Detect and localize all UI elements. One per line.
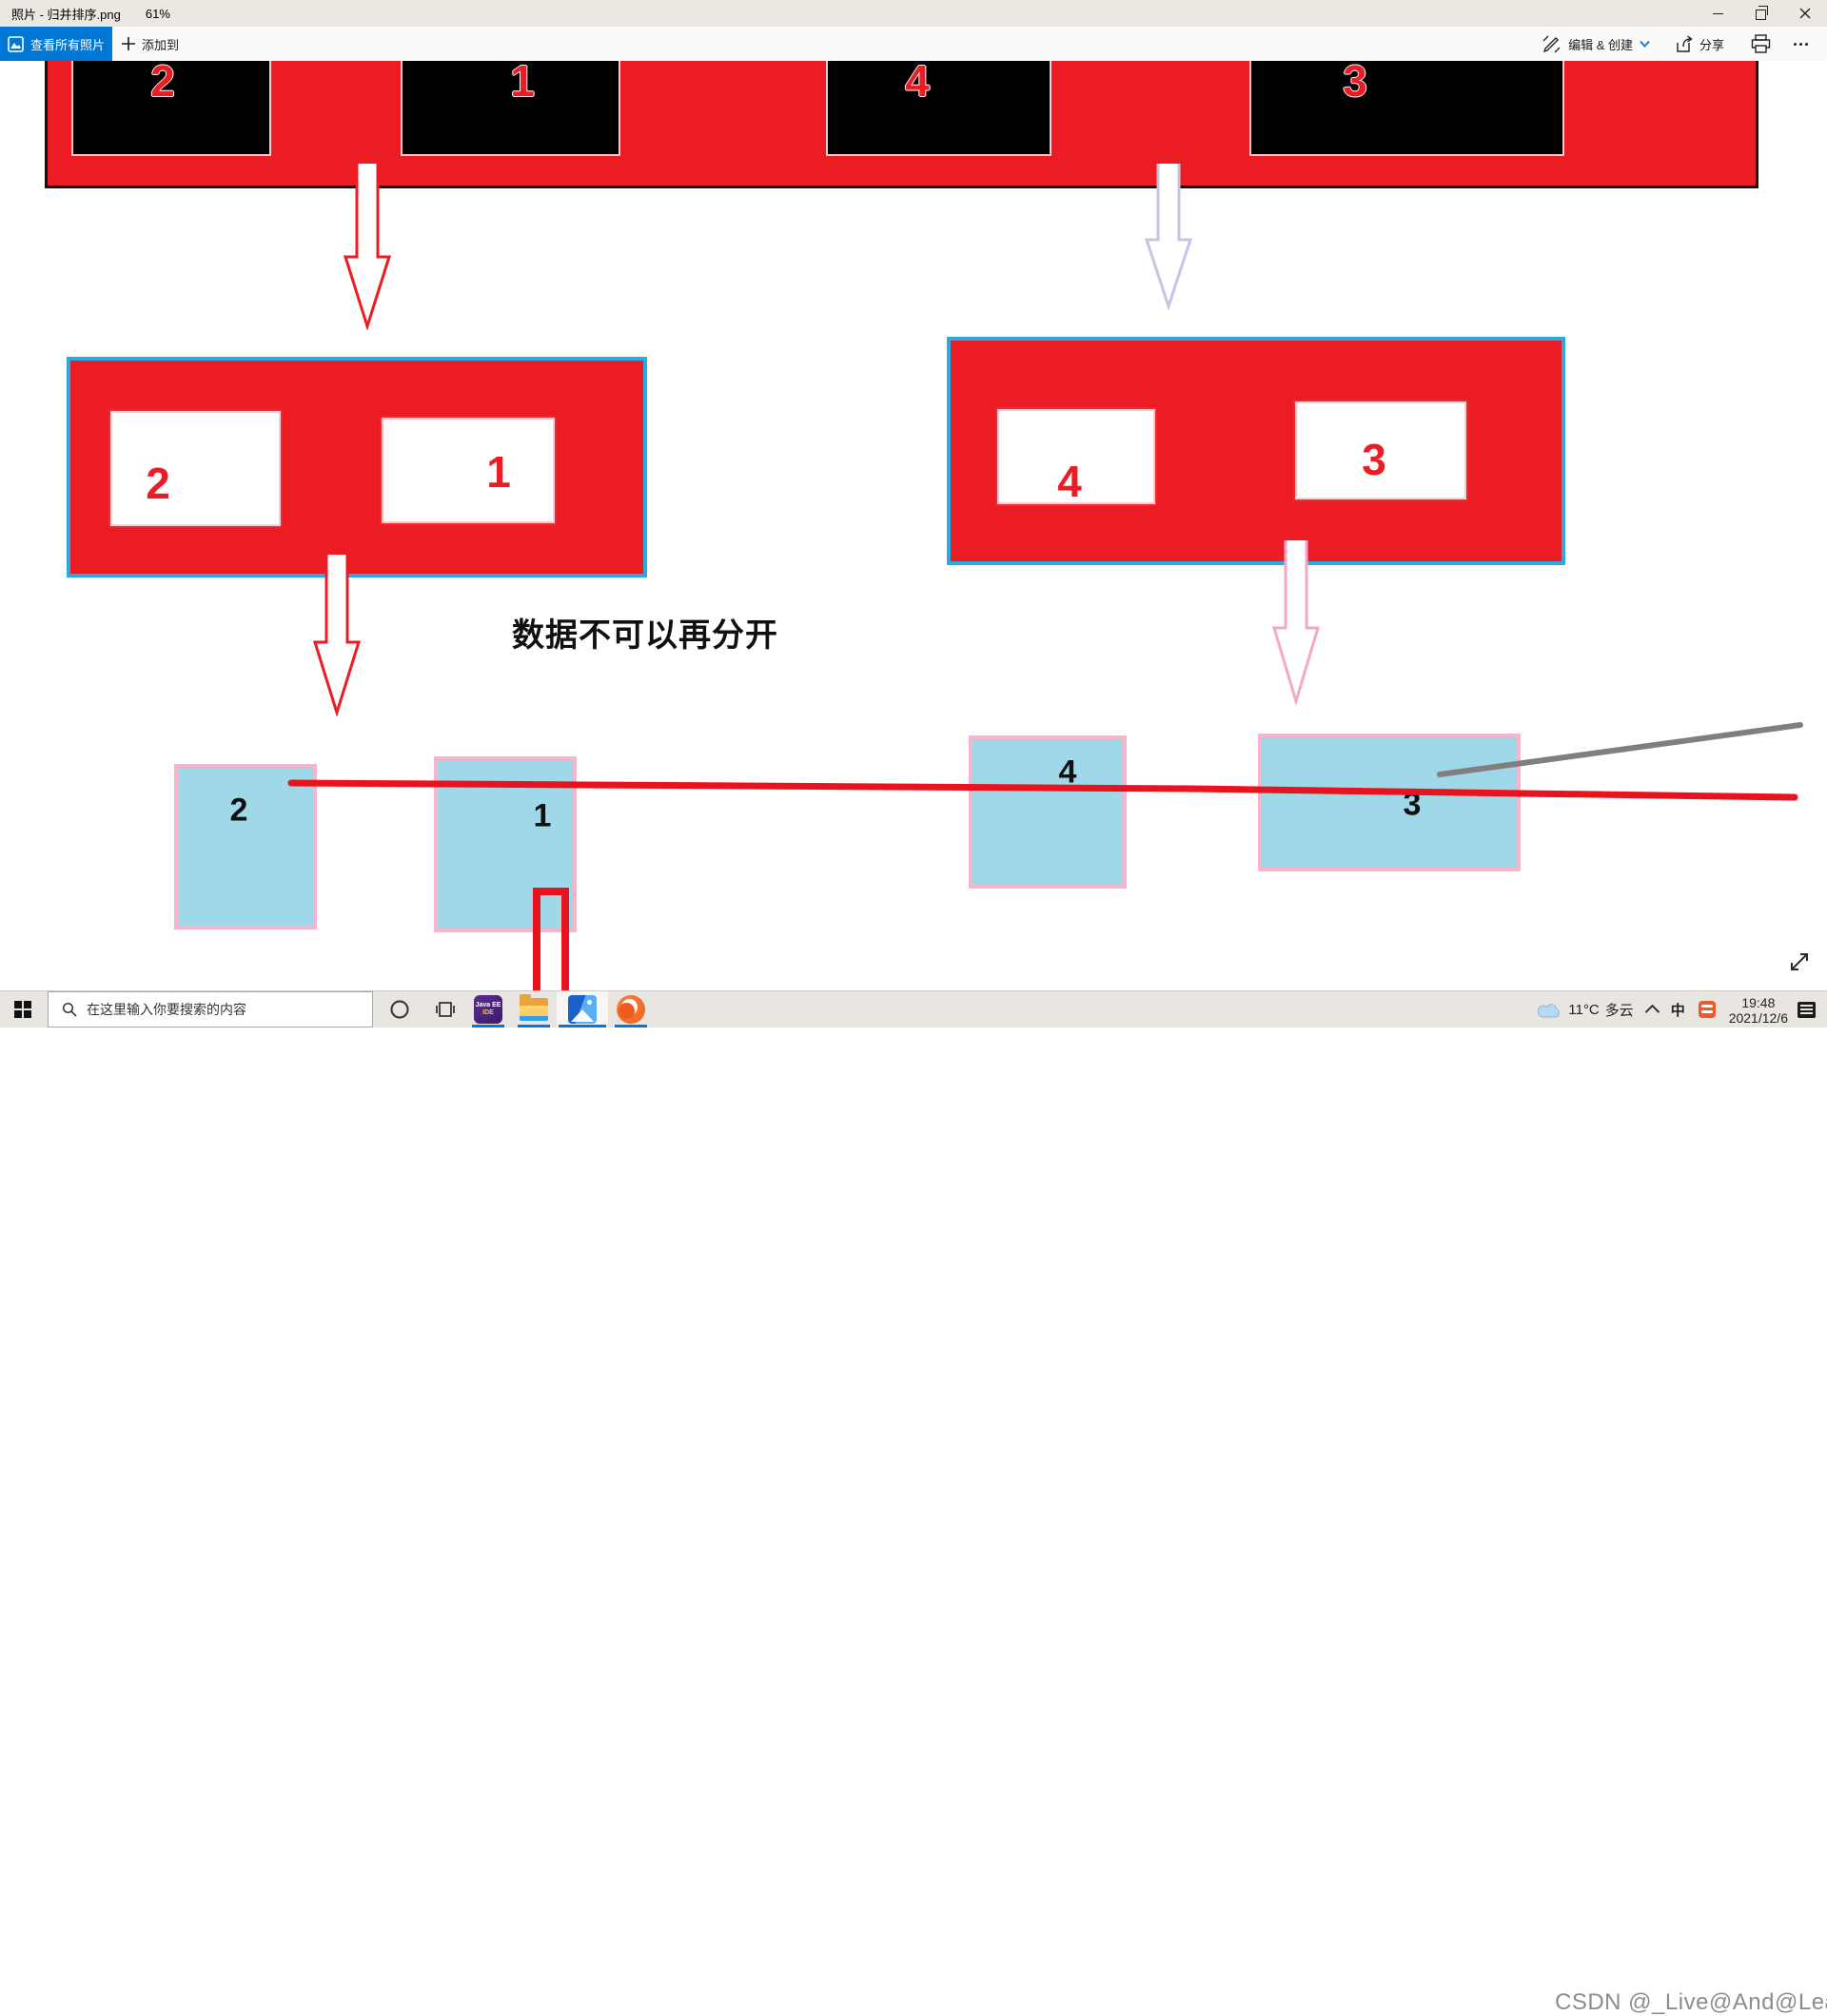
bottom-cell-4 <box>1258 734 1521 871</box>
chevron-down-icon <box>1640 40 1650 48</box>
photo-icon <box>8 36 24 52</box>
cloud-icon <box>1538 1002 1562 1018</box>
close-button[interactable] <box>1783 0 1827 27</box>
start-button[interactable] <box>0 991 46 1028</box>
bottom-cell-3 <box>969 735 1127 889</box>
taskbar-search-input[interactable]: 在这里输入你要搜索的内容 <box>48 991 373 1028</box>
more-button[interactable] <box>1794 43 1808 46</box>
weather-desc: 多云 <box>1605 1000 1634 1020</box>
top-value-3: 4 <box>905 61 930 107</box>
clock-time: 19:48 <box>1729 995 1788 1010</box>
fullscreen-button[interactable] <box>1785 948 1814 976</box>
search-placeholder: 在这里输入你要搜索的内容 <box>87 1000 246 1019</box>
photo-canvas: 2 1 4 3 2 1 4 3 数据不可以再分开 2 1 4 3 <box>0 61 1827 990</box>
file-explorer-icon <box>520 998 548 1021</box>
red-bracket-shape <box>533 888 569 990</box>
bottom-cell-1 <box>174 764 317 930</box>
eclipse-ide-icon: Java EEIDE <box>474 995 502 1024</box>
right-toolbar: 编辑 & 创建 分享 <box>1542 27 1827 61</box>
split-arrow-left <box>341 164 394 330</box>
add-to-label: 添加到 <box>142 35 179 53</box>
taskbar-app-browser[interactable] <box>608 991 654 1028</box>
left-group-cell-1 <box>108 409 283 528</box>
diagram-top-cell-4 <box>1251 61 1562 154</box>
cortana-icon <box>389 999 410 1020</box>
diagram-note: 数据不可以再分开 <box>512 609 778 656</box>
left-group-value-2: 1 <box>486 446 511 498</box>
edit-create-button[interactable]: 编辑 & 创建 <box>1542 35 1650 53</box>
bottom-value-3: 4 <box>1059 754 1077 792</box>
printer-icon <box>1751 34 1771 53</box>
show-hidden-icons-button[interactable] <box>1647 1003 1658 1017</box>
photos-toolbar: 查看所有照片 添加到 编辑 & 创建 <box>0 27 1827 61</box>
view-all-photos-label: 查看所有照片 <box>30 35 105 53</box>
split-arrow-left-2 <box>310 555 363 716</box>
share-icon <box>1675 35 1693 53</box>
taskbar-app-photos-active[interactable] <box>557 991 608 1028</box>
right-group-value-2: 3 <box>1362 434 1386 485</box>
browser-icon <box>617 995 645 1024</box>
share-button[interactable]: 分享 <box>1675 35 1724 53</box>
edit-pencil-icon <box>1542 35 1561 53</box>
input-method-tray-icon[interactable] <box>1699 1001 1716 1018</box>
plus-icon <box>122 37 135 50</box>
share-label: 分享 <box>1699 35 1724 53</box>
print-button[interactable] <box>1751 34 1771 53</box>
zoom-level: 61% <box>146 7 170 21</box>
right-group-value-1: 4 <box>1057 456 1082 507</box>
restore-button[interactable] <box>1739 0 1783 27</box>
left-group-value-1: 2 <box>146 458 170 509</box>
taskbar-app-explorer[interactable] <box>511 991 557 1028</box>
diagram-top-cell-3 <box>828 61 1050 154</box>
csdn-watermark: CSDN @_Live@And@Learn@# <box>1555 1989 1827 2016</box>
left-group-cell-2 <box>380 416 557 525</box>
clock-date: 2021/12/6 <box>1729 1010 1788 1026</box>
search-icon <box>62 1002 77 1017</box>
bottom-value-2: 1 <box>534 798 552 835</box>
view-all-photos-button[interactable]: 查看所有照片 <box>0 27 112 61</box>
photos-app-icon <box>568 995 597 1024</box>
task-view-button[interactable] <box>422 991 468 1028</box>
add-to-button[interactable]: 添加到 <box>122 27 179 61</box>
taskbar-app-eclipse[interactable]: Java EEIDE <box>465 991 511 1028</box>
top-value-2: 1 <box>510 61 535 107</box>
bottom-value-1: 2 <box>230 793 248 830</box>
chevron-up-icon <box>1644 1004 1660 1019</box>
title-bar: 照片 - 归并排序.png 61% <box>0 0 1827 27</box>
ime-mode-indicator[interactable]: 中 <box>1671 1000 1685 1020</box>
restore-icon <box>1756 10 1766 20</box>
system-tray: 11°C 多云 中 19:48 2021/12/6 <box>1538 991 1827 1028</box>
weather-temp: 11°C <box>1568 1002 1599 1018</box>
edit-create-label: 编辑 & 创建 <box>1568 35 1633 53</box>
taskbar-clock[interactable]: 19:48 2021/12/6 <box>1729 995 1788 1026</box>
top-value-1: 2 <box>150 61 175 107</box>
windows-logo-icon <box>14 1001 31 1018</box>
sogou-icon <box>1699 1001 1716 1018</box>
weather-widget[interactable]: 11°C 多云 <box>1538 1000 1633 1020</box>
minimize-button[interactable] <box>1696 0 1739 27</box>
minimize-icon <box>1713 13 1723 14</box>
task-view-icon <box>436 1000 455 1019</box>
window-title: 照片 - 归并排序.png <box>11 5 121 23</box>
top-value-4: 3 <box>1343 61 1367 107</box>
close-icon <box>1799 8 1811 19</box>
window-controls <box>1696 0 1827 27</box>
taskbar: 在这里输入你要搜索的内容 Java EEIDE 11°C 多云 中 <box>0 990 1827 1028</box>
action-center-button[interactable] <box>1798 1002 1816 1018</box>
bottom-value-4: 3 <box>1404 787 1422 824</box>
cortana-button[interactable] <box>377 991 422 1028</box>
